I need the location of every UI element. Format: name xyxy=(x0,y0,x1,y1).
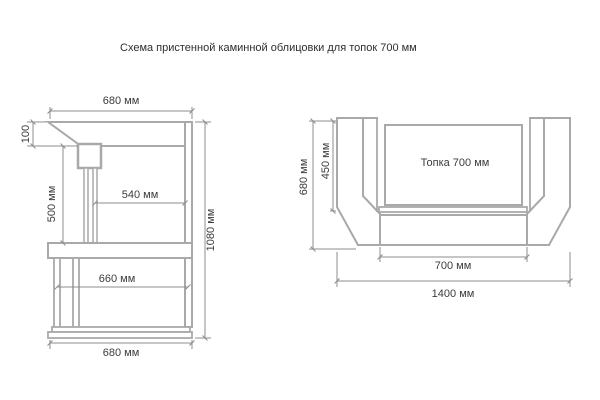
label-hood-height: 100 xyxy=(20,125,32,143)
label-opening-width: 540 мм xyxy=(122,189,159,201)
label-total-width: 1400 мм xyxy=(432,288,475,300)
column-wall-left xyxy=(84,168,88,244)
label-opening-height: 500 мм xyxy=(46,186,58,223)
base-slab-bottom xyxy=(48,332,192,338)
plan-view-drawing xyxy=(336,118,571,245)
hood-box xyxy=(78,144,101,168)
label-firebox: Топка 700 мм xyxy=(421,157,490,169)
drawing-page: Схема пристенной каминной облицовки для … xyxy=(0,0,600,400)
label-shelf-width: 660 мм xyxy=(99,273,136,285)
drawing-canvas: 680 мм 100 500 мм 540 мм 1080 мм 660 мм … xyxy=(0,0,600,400)
canopy-shape xyxy=(48,122,192,146)
right-console-outer xyxy=(549,118,570,245)
side-view-drawing xyxy=(48,122,192,338)
shelf-slab xyxy=(48,243,192,258)
label-total-height: 1080 мм xyxy=(205,209,217,252)
lower-post-outer xyxy=(54,258,60,328)
left-console-inner xyxy=(363,118,381,215)
right-console-inner xyxy=(526,118,544,215)
right-wall xyxy=(185,122,192,327)
lower-post-inner xyxy=(73,258,79,328)
label-depth: 680 мм xyxy=(298,159,310,196)
label-base-width: 680 мм xyxy=(103,347,140,359)
left-console-outer xyxy=(337,118,358,245)
column-wall-right xyxy=(93,168,97,244)
label-front-width: 700 мм xyxy=(435,260,472,272)
front-block xyxy=(380,215,527,245)
label-top-width: 680 мм xyxy=(103,95,140,107)
label-portal-depth: 450 мм xyxy=(320,143,332,180)
hearth-lip xyxy=(379,207,527,212)
